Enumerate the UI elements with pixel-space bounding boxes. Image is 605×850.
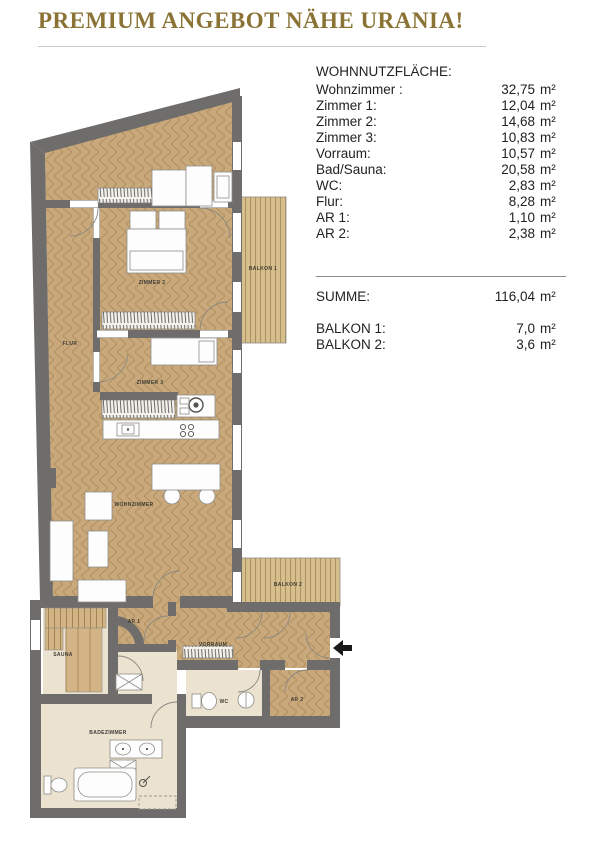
flyer-page: PREMIUM ANGEBOT NÄHE URANIA! WOHNNUTZFLÄ… (0, 0, 605, 850)
label-sauna: SAUNA (53, 652, 73, 658)
label-wohnzimmer: WOHNZIMMER (114, 502, 153, 508)
label-ar1: AR 1 (128, 619, 141, 625)
label-balkon2: BALKON 2 (274, 582, 302, 588)
zimmer1-furniture (152, 166, 232, 206)
floorplan-svg: FLUR ZIMMER 2 ZIMMER 3 WOHNZIMMER BALKON… (0, 0, 605, 850)
label-ar2: AR 2 (291, 697, 304, 703)
label-balkon1: BALKON 1 (249, 266, 277, 272)
kitchen (103, 420, 219, 439)
label-zimmer2: ZIMMER 2 (139, 280, 166, 286)
label-badezimmer: BADEZIMMER (89, 730, 126, 736)
label-flur: FLUR (63, 341, 78, 347)
label-wc: WC (219, 699, 228, 705)
label-zimmer3: ZIMMER 3 (137, 380, 164, 386)
label-vorraum: VORRAUM (199, 642, 227, 648)
